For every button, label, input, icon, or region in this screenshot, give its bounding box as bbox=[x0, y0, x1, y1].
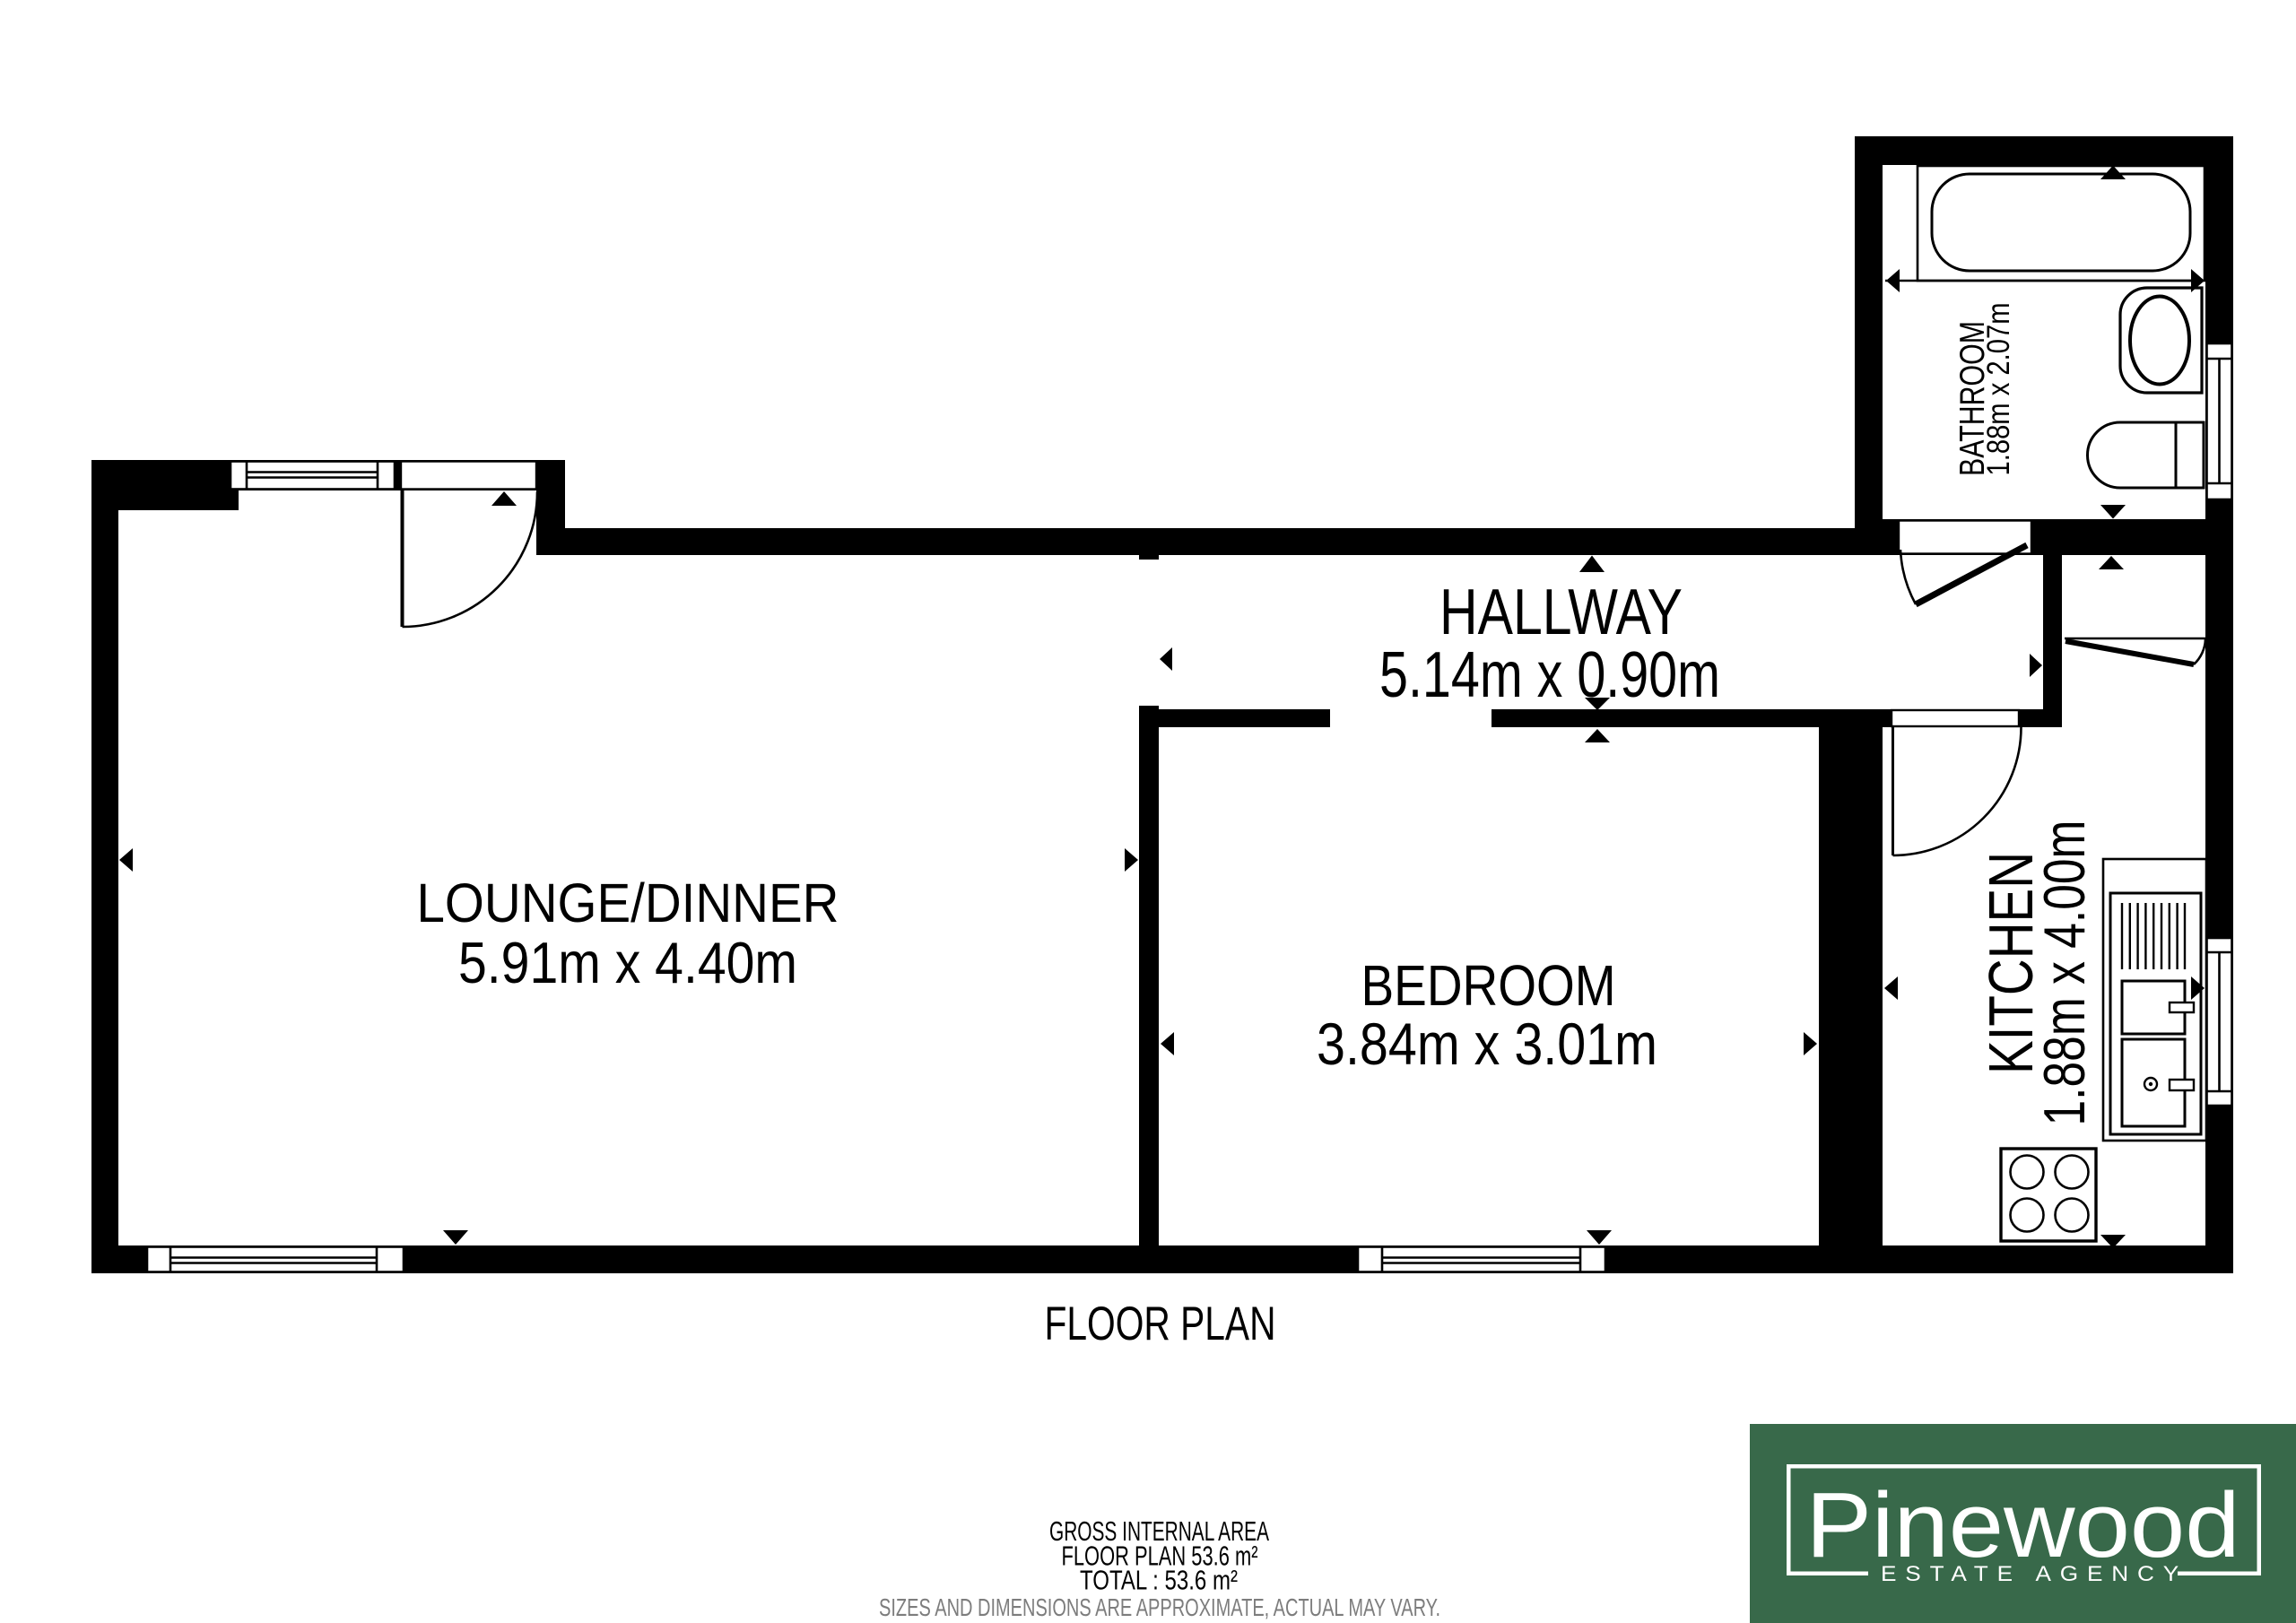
svg-text:BEDROOM: BEDROOM bbox=[1361, 953, 1616, 1018]
svg-text:TOTAL : 53.6 m²: TOTAL : 53.6 m² bbox=[1080, 1565, 1238, 1596]
svg-text:5.91m x 4.40m: 5.91m x 4.40m bbox=[458, 930, 797, 995]
svg-text:5.14m x 0.90m: 5.14m x 0.90m bbox=[1379, 639, 1720, 711]
svg-text:ESTATE AGENCY: ESTATE AGENCY bbox=[1881, 1562, 2187, 1586]
svg-text:HALLWAY: HALLWAY bbox=[1439, 577, 1683, 648]
svg-text:SIZES AND DIMENSIONS ARE APPRO: SIZES AND DIMENSIONS ARE APPROXIMATE, AC… bbox=[879, 1593, 1440, 1621]
svg-text:1.88m x 4.00m: 1.88m x 4.00m bbox=[2031, 820, 2097, 1126]
svg-text:Pinewood: Pinewood bbox=[1806, 1473, 2240, 1576]
svg-text:LOUNGE/DINNER: LOUNGE/DINNER bbox=[417, 872, 839, 933]
svg-text:1.88m x 2.07m: 1.88m x 2.07m bbox=[1981, 303, 2016, 476]
svg-text:3.84m x 3.01m: 3.84m x 3.01m bbox=[1317, 1011, 1657, 1077]
svg-text:FLOOR PLAN: FLOOR PLAN bbox=[1045, 1298, 1276, 1350]
